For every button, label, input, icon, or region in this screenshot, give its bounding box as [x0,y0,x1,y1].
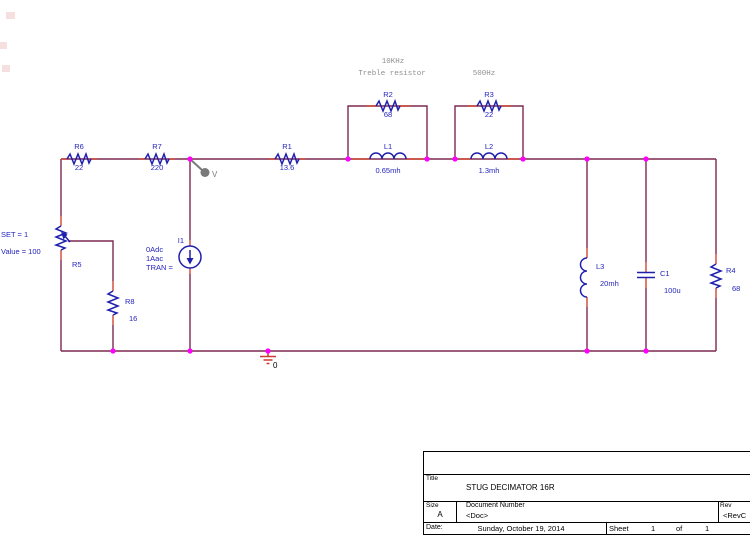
junction-dot [584,156,589,161]
annotation-500hz[interactable]: 500Hz [473,70,496,78]
ground-symbol[interactable]: 0 [260,351,278,370]
resistor-R7[interactable]: R7 220 [139,142,175,172]
ref-label[interactable]: I1 [178,236,184,245]
docnumber-field-label: Document Number [466,502,525,509]
ref-label[interactable]: R5 [72,260,82,269]
title-field-label: Title [426,475,438,482]
value-label[interactable]: 13.6 [280,163,295,172]
ref-label[interactable]: R8 [125,297,135,306]
schematic-page: R6 22 R7 220 R1 13.6 R2 68 R3 [0,0,750,537]
pot-value-label[interactable]: Value = 100 [1,247,41,256]
junction-dot [584,348,589,353]
value-label[interactable]: 220 [151,163,164,172]
edge-artifact [2,65,10,72]
junction-dot [187,156,192,161]
sheet-total: 1 [705,524,709,533]
title-block: Title STUG DECIMATOR 16R Size A Document… [423,451,750,535]
inductor-body [370,153,406,159]
resistor-R4[interactable]: R4 68 [711,254,740,298]
ref-label[interactable]: R3 [484,90,494,99]
junction-dot [265,348,270,353]
resistor-body [108,291,118,315]
capacitor-C1[interactable]: C1 100u [637,262,681,295]
source-arrow-head [187,258,194,265]
ref-label[interactable]: R7 [152,142,162,151]
rev-code: <RevC [723,511,746,520]
value-label[interactable]: 68 [384,110,392,119]
junction-dot [345,156,350,161]
inductor-body [581,258,588,297]
junction-dot [643,348,648,353]
resistor-R3[interactable]: R3 22 [467,90,511,119]
source-tran-label[interactable]: TRAN = [146,263,174,272]
potentiometer-R5[interactable]: R5 SET = 1 Value = 100 [1,216,82,269]
wire-wiper-branch[interactable] [68,241,113,351]
junction-dot [643,156,648,161]
current-source-I1[interactable]: I1 0Adc 1Aac TRAN = [146,236,201,274]
sheet-title: STUG DECIMATOR 16R [466,483,555,492]
capacitor-plates [637,273,655,278]
junction-dot [110,348,115,353]
source-ac-label[interactable]: 1Aac [146,254,163,263]
voltage-probe[interactable]: V [191,160,218,179]
title-block-line [606,522,607,535]
doc-number: <Doc> [466,511,488,520]
probe-stem [191,160,202,170]
rev-field-label: Rev [720,502,732,509]
probe-tip[interactable] [201,168,210,177]
resistor-R8[interactable]: R8 16 [108,281,137,325]
ref-label[interactable]: C1 [660,269,670,278]
ref-label[interactable]: R1 [282,142,292,151]
annotation-10khz[interactable]: 10KHz [382,58,405,66]
title-block-line [424,474,750,475]
value-label[interactable]: 0.65mh [375,166,400,175]
junction-dots [110,156,648,353]
resistor-body [711,264,721,288]
title-block-line [718,501,719,522]
title-block-line [456,501,457,522]
annotation-treble[interactable]: Treble resistor [358,70,426,78]
value-label[interactable]: 16 [129,314,137,323]
sheet-size: A [432,510,448,519]
ref-label[interactable]: R6 [74,142,84,151]
value-label[interactable]: 68 [732,284,740,293]
value-label[interactable]: 100u [664,286,681,295]
edge-artifact [0,42,7,49]
ref-label[interactable]: R2 [383,90,393,99]
ref-label[interactable]: R4 [726,266,736,275]
probe-label: V [212,170,218,179]
ref-label[interactable]: L3 [596,262,604,271]
source-dc-label[interactable]: 0Adc [146,245,163,254]
value-label[interactable]: 22 [75,163,83,172]
resistor-R2[interactable]: R2 68 [366,90,410,119]
annotation-text[interactable]: 10KHz Treble resistor 500Hz [358,58,495,78]
resistor-R6[interactable]: R6 22 [61,142,97,172]
sheet-field-label: Sheet [609,524,629,533]
value-label[interactable]: 20mh [600,279,619,288]
ref-label[interactable]: L2 [485,142,493,151]
value-label[interactable]: 1.3mh [479,166,500,175]
resistor-R1[interactable]: R1 13.6 [269,142,305,172]
junction-dot [187,348,192,353]
sheet-date: Sunday, October 19, 2014 [446,524,596,533]
junction-dot [424,156,429,161]
junction-dot [452,156,457,161]
pot-set-label[interactable]: SET = 1 [1,230,28,239]
size-field-label: Size [426,502,439,509]
sheet-of-label: of [676,524,682,533]
inductor-body [471,153,507,159]
value-label[interactable]: 22 [485,110,493,119]
junction-dot [520,156,525,161]
ground-label: 0 [273,361,278,370]
edge-artifact [6,12,15,19]
sheet-number: 1 [651,524,655,533]
inductor-L3[interactable]: L3 20mh [581,248,619,307]
date-field-label: Date: [426,524,443,531]
ref-label[interactable]: L1 [384,142,392,151]
